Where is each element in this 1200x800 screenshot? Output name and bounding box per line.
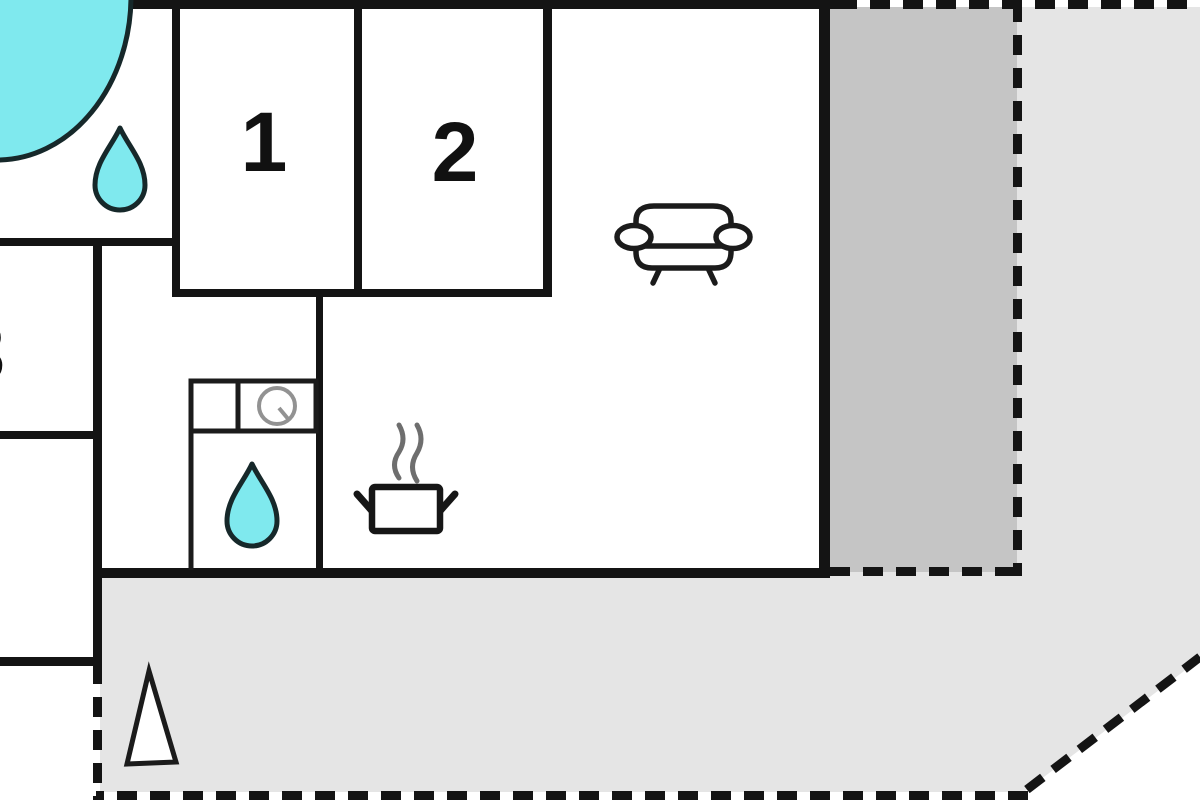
- wall-segment: [0, 657, 102, 666]
- cooking-pot-icon: [357, 425, 455, 531]
- wall-segment: [819, 0, 830, 577]
- wall-segment: [0, 238, 180, 246]
- wall-segment: [93, 568, 830, 578]
- wall-segment: [93, 239, 102, 666]
- covered-terrace-area: [828, 7, 1017, 572]
- walls: [0, 0, 837, 666]
- steam-lines: [395, 425, 422, 481]
- wall-segment: [354, 0, 362, 297]
- counter-box: [191, 381, 316, 431]
- water-drop-icon: [227, 464, 277, 546]
- floor-plan: 1 2 3: [0, 0, 1200, 800]
- floor-plan-canvas: [0, 0, 1200, 800]
- room-label-1: 1: [234, 100, 294, 184]
- sofa-icon: [617, 206, 750, 283]
- bathtub-icon: [0, 0, 131, 160]
- water-drop-icon: [95, 128, 145, 210]
- wall-segment: [543, 0, 552, 297]
- room-label-3: 3: [0, 310, 12, 394]
- wall-segment: [172, 0, 180, 297]
- room-label-2: 2: [425, 110, 485, 194]
- wall-segment: [0, 431, 100, 439]
